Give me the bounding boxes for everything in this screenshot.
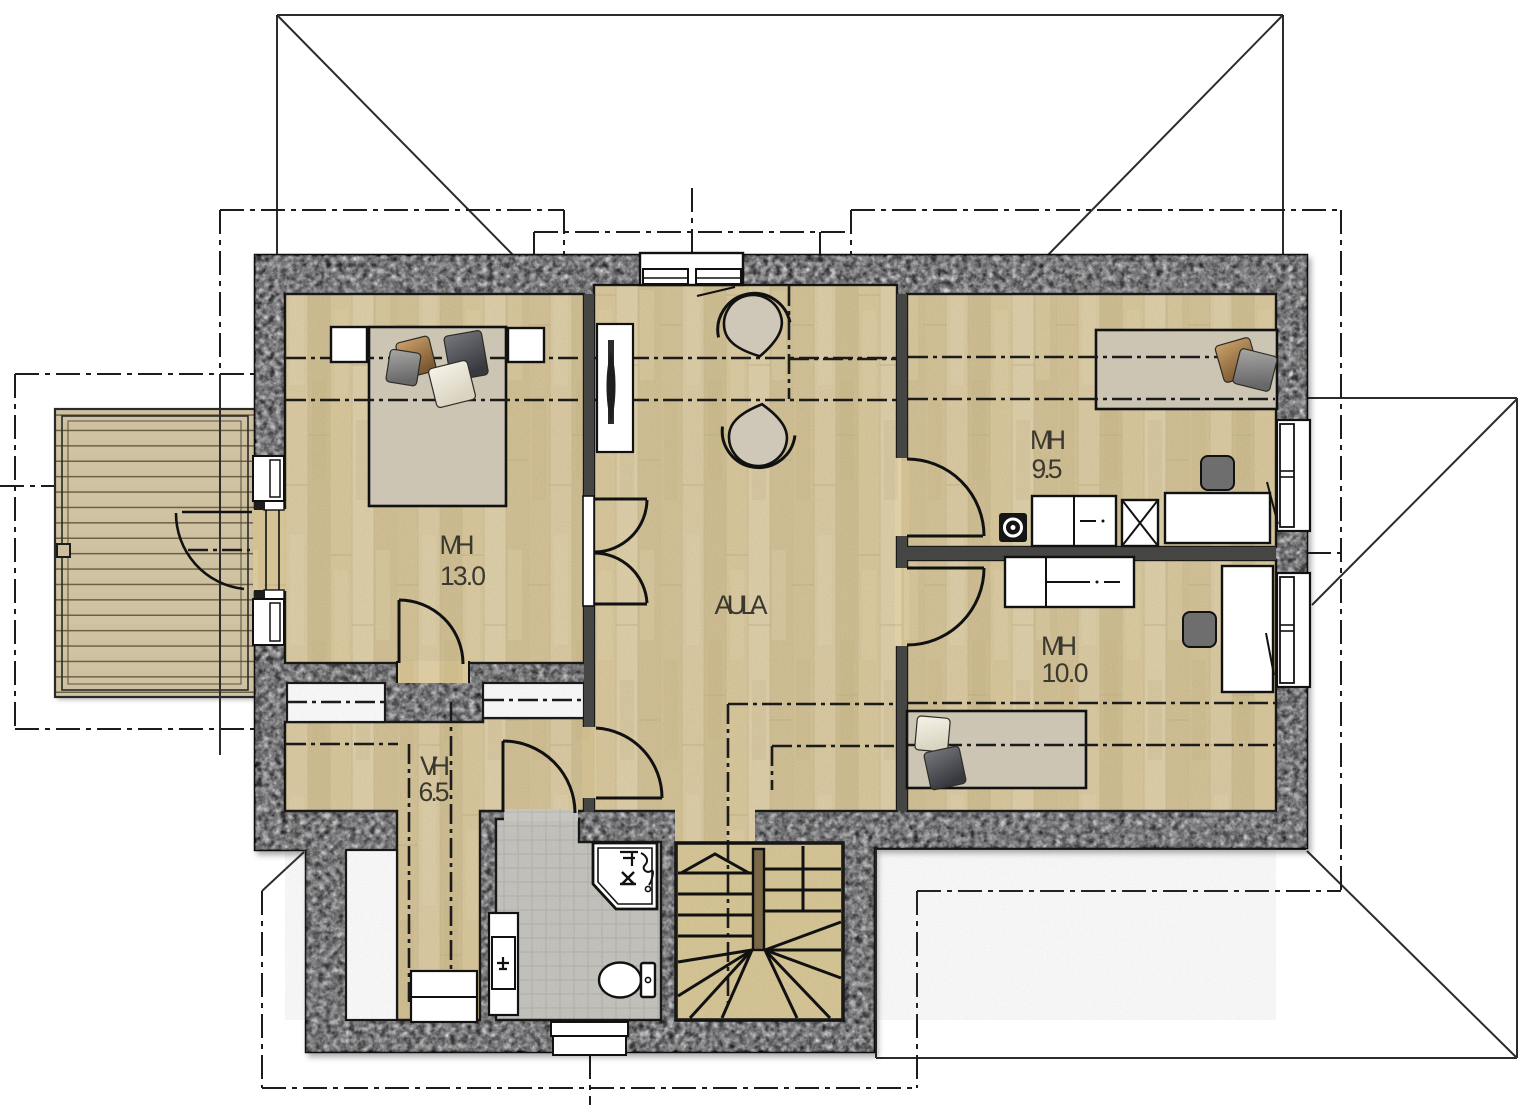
svg-text:13.0: 13.0 bbox=[440, 561, 486, 591]
svg-text:10.0: 10.0 bbox=[1042, 658, 1089, 688]
svg-text:MH: MH bbox=[440, 530, 475, 560]
svg-text:9.5: 9.5 bbox=[1032, 454, 1063, 484]
svg-text:MH: MH bbox=[1030, 425, 1066, 455]
svg-text:AULA: AULA bbox=[715, 590, 768, 620]
svg-text:MH: MH bbox=[1041, 631, 1077, 661]
svg-text:6.5: 6.5 bbox=[419, 777, 450, 807]
